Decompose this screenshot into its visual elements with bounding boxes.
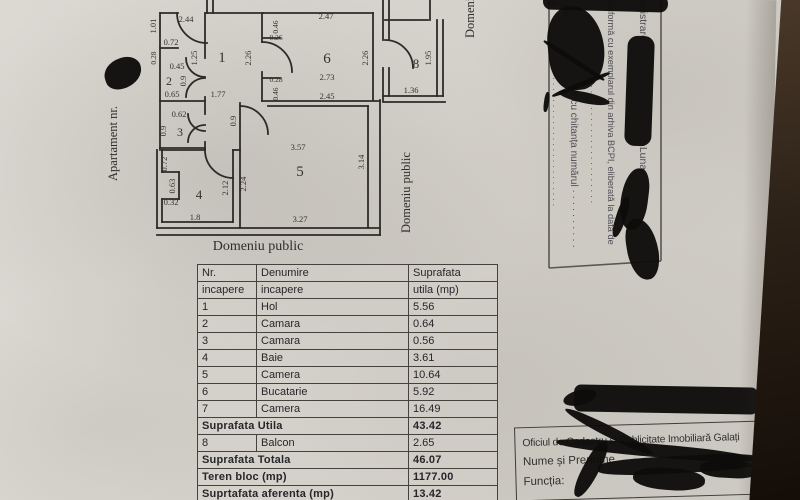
table-row: 4Baie3.61 (198, 350, 498, 367)
scanned-cadastral-document: 2.441.010.721.2512.261.770.280.4520.90.6… (0, 0, 800, 500)
table-cell: 2 (198, 316, 257, 333)
stamp-text-line: conformă cu exemplarul din arhiva BCPI, … (606, 0, 616, 245)
plan-wall (188, 125, 205, 142)
plan-wall (186, 78, 205, 97)
table-header-cell: Suprafata (409, 265, 498, 282)
room-number-label: 6 (323, 51, 331, 67)
table-cell: 3.61 (409, 350, 498, 367)
plan-dimension-label: 2.26 (243, 51, 253, 66)
table-cell: Camara (257, 316, 409, 333)
table-cell: 5 (198, 367, 257, 384)
table-cell: 5.92 (409, 384, 498, 401)
room-number-label: 5 (296, 164, 304, 180)
plan-dimension-label: 1.95 (423, 51, 433, 66)
room-number-label: 3 (177, 125, 183, 139)
table-row: 2Camara0.64 (198, 316, 498, 333)
table-cell: 10.64 (409, 367, 498, 384)
table-cell: 6 (198, 384, 257, 401)
plan-dimension-label: 0.28 (269, 75, 282, 84)
table-cell: 1 (198, 299, 257, 316)
plan-dimension-label: 1.77 (211, 89, 226, 99)
plan-wall (385, 40, 413, 68)
table-cell: 5.56 (409, 299, 498, 316)
plan-dimension-label: 2.73 (320, 72, 335, 82)
room-number-label: 4 (196, 187, 203, 202)
table-summary-value: 1177.00 (409, 469, 498, 486)
plan-wall (262, 42, 292, 72)
public-domain-right-label: Domeniu public (399, 152, 413, 233)
table-summary-label: Suprafata Utila (198, 418, 409, 435)
plan-dimension-label: 0.32 (164, 197, 179, 207)
table-header-row: incapereincapereutila (mp) (198, 282, 498, 299)
table-cell: 4 (198, 350, 257, 367)
plan-dimension-label: 1.01 (148, 19, 158, 34)
plan-dimension-label: 0.9 (228, 116, 238, 127)
plan-dimension-label: 2.12 (220, 181, 230, 196)
room-number-label: 2 (166, 74, 172, 88)
table-row: 5Camera10.64 (198, 367, 498, 384)
table-cell: Hol (257, 299, 409, 316)
room-number-label: 8 (413, 56, 420, 71)
plan-dimension-label: 2.24 (238, 176, 248, 192)
table-row: 7Camera16.49 (198, 401, 498, 418)
public-domain-top-label: Domeniu public (463, 0, 477, 38)
table-header-cell: Nr. (198, 265, 257, 282)
plan-dimension-label: 0.63 (167, 179, 177, 194)
table-row: 1Hol5.56 (198, 299, 498, 316)
plan-dimension-label: 0.46 (271, 87, 280, 100)
table-cell: 0.64 (409, 316, 498, 333)
table-row: 8Balcon2.65 (198, 435, 498, 452)
table-summary-label: Suprafata Totala (198, 452, 409, 469)
table-cell: 3 (198, 333, 257, 350)
plan-dimension-label: 0.9 (178, 76, 188, 87)
plan-dimension-label: 1.36 (404, 85, 419, 95)
room-number-label: 1 (218, 50, 226, 66)
plan-dimension-label: 0.62 (172, 109, 187, 119)
plan-dimension-label: 0.26 (269, 33, 282, 42)
table-header-cell: incapere (257, 282, 409, 299)
table-cell: 16.49 (409, 401, 498, 418)
table-cell: Camara (257, 333, 409, 350)
table-header-row: Nr.DenumireSuprafata (198, 265, 498, 282)
redaction-mark (574, 384, 758, 414)
plan-dimension-label: 0.46 (271, 20, 280, 33)
table-summary-value: 43.42 (409, 418, 498, 435)
plan-dimension-label: 0.9 (158, 126, 168, 137)
plan-dimension-label: 0.72 (164, 37, 179, 47)
redaction-mark (624, 36, 655, 147)
plan-dimension-label: 0.72 (159, 157, 169, 172)
table-summary-value: 13.42 (409, 486, 498, 500)
plan-dimension-label: 0.45 (170, 61, 185, 71)
plan-dimension-label: 1.8 (190, 212, 201, 222)
area-table: Nr.DenumireSuprafataincapereincapereutil… (197, 264, 498, 500)
table-row: Suprafata Utila43.42 (198, 418, 498, 435)
table-cell: 0.56 (409, 333, 498, 350)
table-summary-value: 46.07 (409, 452, 498, 469)
table-cell: Balcon (257, 435, 409, 452)
table-cell: Camera (257, 367, 409, 384)
table-row: Suprtafata aferenta (mp)13.42 (198, 486, 498, 500)
plan-dimension-label: 2.45 (320, 91, 335, 101)
table-row: 3Camara0.56 (198, 333, 498, 350)
table-cell: 7 (198, 401, 257, 418)
table-header-cell: incapere (198, 282, 257, 299)
plan-dimension-label: 0.28 (149, 51, 158, 64)
table-header-cell: utila (mp) (409, 282, 498, 299)
table-summary-label: Teren bloc (mp) (198, 469, 409, 486)
plan-dimension-label: 2.44 (179, 14, 195, 24)
table-cell: 2.65 (409, 435, 498, 452)
plan-dimension-label: 3.14 (356, 154, 366, 170)
table-cell: Bucatarie (257, 384, 409, 401)
table-cell: Baie (257, 350, 409, 367)
table-row: Teren bloc (mp)1177.00 (198, 469, 498, 486)
table-row: 6Bucatarie5.92 (198, 384, 498, 401)
table-cell: 8 (198, 435, 257, 452)
plan-dimension-label: 1.25 (189, 51, 199, 66)
plan-wall (240, 106, 268, 134)
stamp-text-line: X cu chitanța numărul · · · · · · · · · … (568, 90, 579, 248)
plan-dimension-label: 0.65 (165, 89, 180, 99)
table-header-cell: Denumire (257, 265, 409, 282)
table-summary-label: Suprtafata aferenta (mp) (198, 486, 409, 500)
plan-dimension-label: 3.57 (291, 142, 306, 152)
public-domain-bottom-label: Domeniu public (213, 239, 304, 254)
table-row: Suprafata Totala46.07 (198, 452, 498, 469)
apartment-number-label: Apartament nr. (106, 106, 120, 181)
plan-dimension-label: 3.27 (293, 214, 308, 224)
table-cell: Camera (257, 401, 409, 418)
plan-wall (188, 114, 205, 131)
plan-wall (205, 150, 233, 178)
plan-dimension-label: 2.26 (360, 51, 370, 66)
plan-dimension-label: 2.47 (319, 11, 334, 21)
